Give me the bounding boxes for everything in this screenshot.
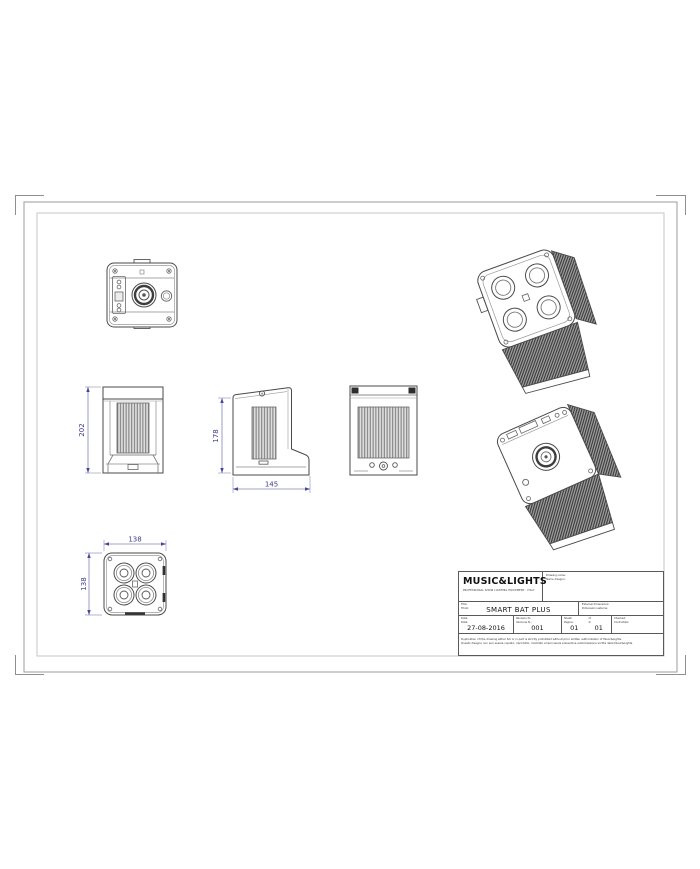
title-cell: Title: Titolo: SMART BAT PLUS [459, 602, 579, 615]
rear-view-clamp-right [409, 388, 416, 394]
checked-cell: Checked: Controllato: [612, 616, 663, 633]
title-block: MUSIC&LIGHTS PROFESSIONAL SHOW LIGHTING … [458, 571, 664, 656]
dimension-bottom-width: 138 [104, 536, 166, 552]
meta-row: Date: Data: 27-08-2016 Revision N.: Vers… [459, 615, 663, 633]
title-label-it: Titolo: [461, 607, 469, 611]
bottom-view [104, 553, 166, 615]
dimension-front-height: 202 [78, 387, 101, 473]
title-row: Title: Titolo: SMART BAT PLUS External d… [459, 601, 663, 615]
iso-view-bottom [495, 396, 641, 559]
frame-corner-mark-top-right [656, 196, 686, 216]
drawing-name-cell: Drawing name: Nome disegno: [543, 572, 663, 601]
dimension-side-height: 178 [212, 398, 231, 473]
svg-text:178: 178 [212, 429, 220, 442]
top-view [107, 260, 177, 329]
dimension-bottom-depth: 138 [80, 553, 102, 615]
title-block-header-row: MUSIC&LIGHTS PROFESSIONAL SHOW LIGHTING … [459, 572, 663, 601]
sheet-cell: Sheet: Pagine: 01 of di 01 [562, 616, 612, 633]
svg-text:202: 202 [78, 423, 86, 436]
technical-drawing-canvas: 202 178 145 [0, 0, 700, 869]
iso-view-top [468, 241, 614, 404]
disclaimer-row: Duplication of this drawing either full … [459, 633, 663, 645]
dimension-side-depth: 145 [233, 476, 310, 493]
of-value: 01 [587, 624, 612, 632]
side-view [233, 388, 309, 475]
drawing-sheet-page: 202 178 145 [0, 0, 700, 869]
checked-label-it: Controllato: [614, 621, 629, 625]
revision-cell: Revision N.: Versione N.: 001 [514, 616, 562, 633]
frame-corner-mark-top-left [16, 196, 45, 216]
top-view-center-knob [132, 283, 156, 307]
dimensions-note-cell: External dimensions: Dimensioni esterne: [579, 602, 663, 615]
drawing-name-label-it: Nome disegno: [546, 578, 663, 582]
rear-view [350, 386, 417, 475]
front-view-heatsink-ribs [117, 403, 149, 453]
logo-cell: MUSIC&LIGHTS PROFESSIONAL SHOW LIGHTING … [459, 572, 543, 601]
revision-value: 001 [514, 624, 561, 632]
svg-text:138: 138 [80, 577, 88, 590]
date-cell: Date: Data: 27-08-2016 [459, 616, 514, 633]
front-view [103, 387, 163, 473]
date-value: 27-08-2016 [459, 624, 513, 632]
disclaimer-it: Questo disegno non può essere copiato, r… [461, 641, 661, 645]
product-title: SMART BAT PLUS [459, 602, 578, 614]
rear-view-heatsink-ribs [358, 407, 409, 458]
company-tagline: PROFESSIONAL SHOW LIGHTING EQUIPMENT · I… [463, 589, 540, 592]
dimensions-label-it: Dimensioni esterne: [582, 607, 663, 611]
side-view-heatsink-ribs [252, 407, 276, 459]
company-logo: MUSIC&LIGHTS [463, 576, 540, 587]
rear-view-clamp-left [352, 388, 359, 394]
sheet-value: 01 [562, 624, 587, 632]
svg-text:138: 138 [128, 536, 141, 544]
svg-text:145: 145 [265, 481, 278, 489]
